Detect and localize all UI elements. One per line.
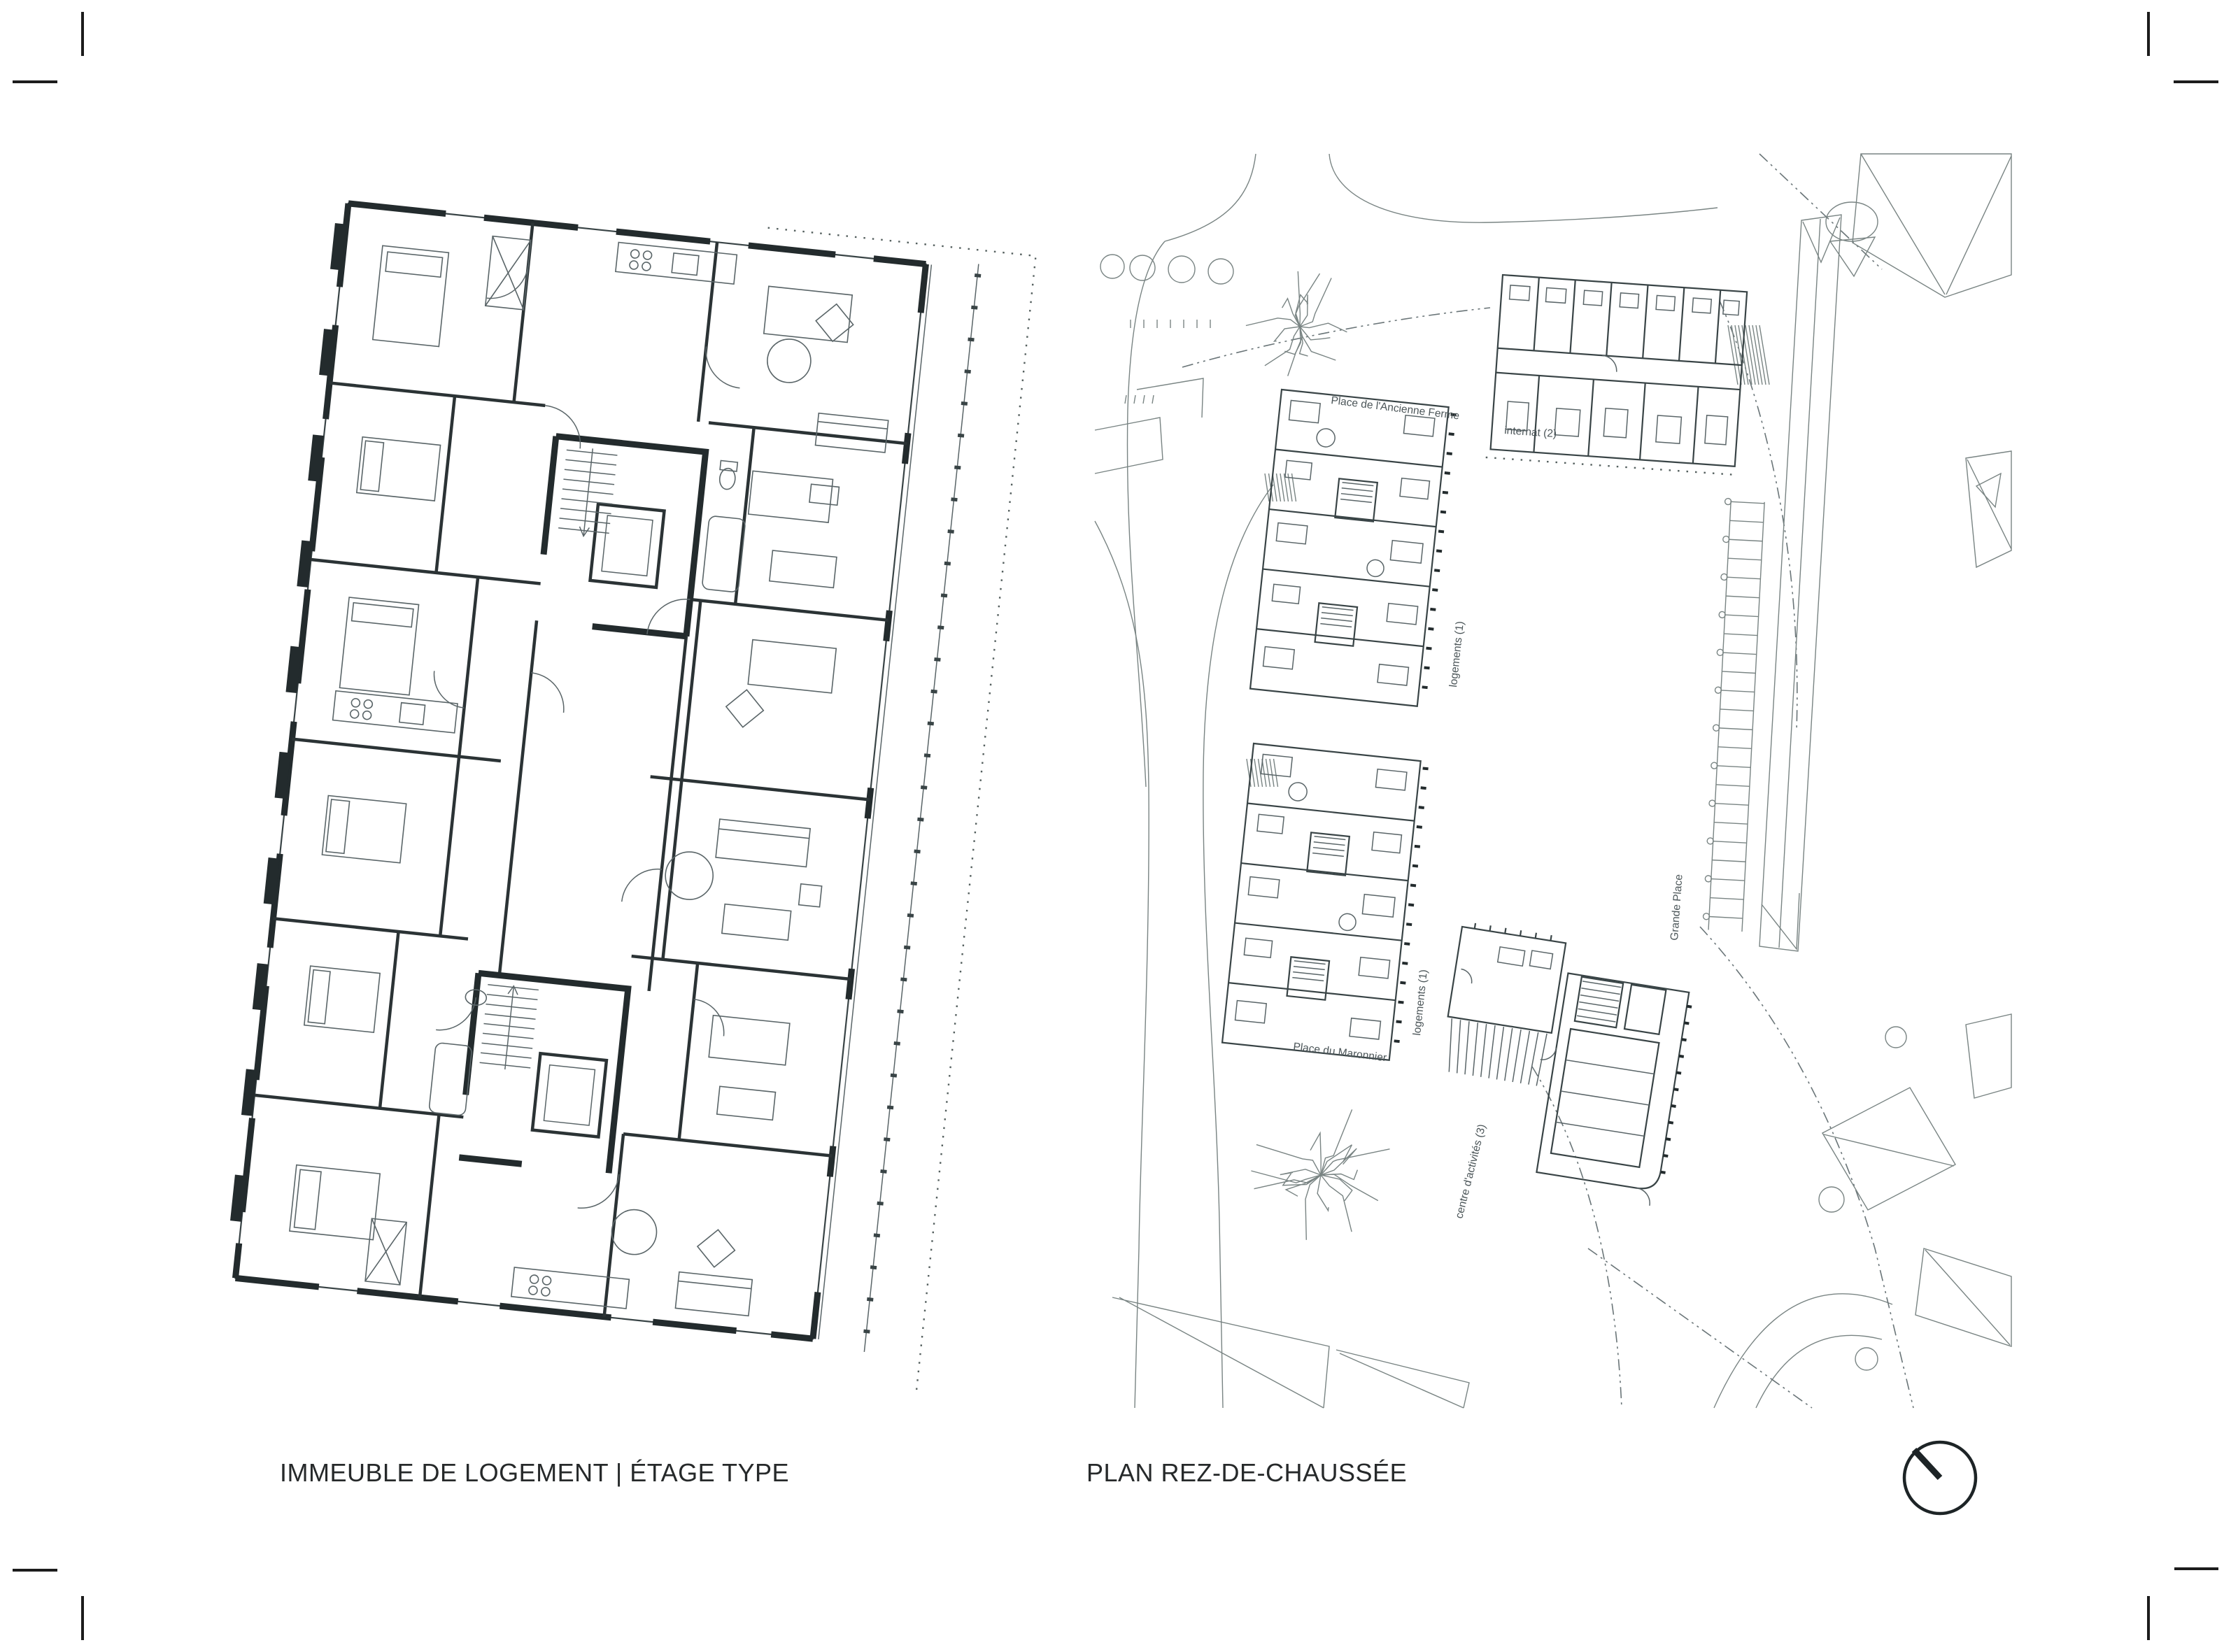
site-label-logements-upper: logements (1): [1447, 620, 1466, 688]
site-plan-caption: PLAN REZ-DE-CHAUSSÉE: [1086, 1458, 1407, 1488]
site-plan-drawing: Place de l'Ancienne Ferme internat (2) l…: [1098, 157, 2015, 1409]
site-label-grande-place: Grande Place: [1669, 874, 1685, 941]
floor-plan-caption: IMMEUBLE DE LOGEMENT | ÉTAGE TYPE: [280, 1458, 789, 1488]
site-label-centre-activites: centre d'activités (3): [1453, 1123, 1488, 1220]
site-label-place-ancienne-ferme: Place de l'Ancienne Ferme: [1331, 394, 1460, 422]
site-label-place-maronnier: Place du Maronnier: [1293, 1041, 1387, 1064]
site-label-logements-lower: logements (1): [1411, 969, 1430, 1036]
drawing-sheet: Place de l'Ancienne Ferme internat (2) l…: [0, 0, 2231, 1652]
floor-plan-drawing: [241, 203, 997, 1448]
north-arrow-icon: [1897, 1434, 1983, 1521]
site-label-internat: internat (2): [1504, 425, 1557, 440]
